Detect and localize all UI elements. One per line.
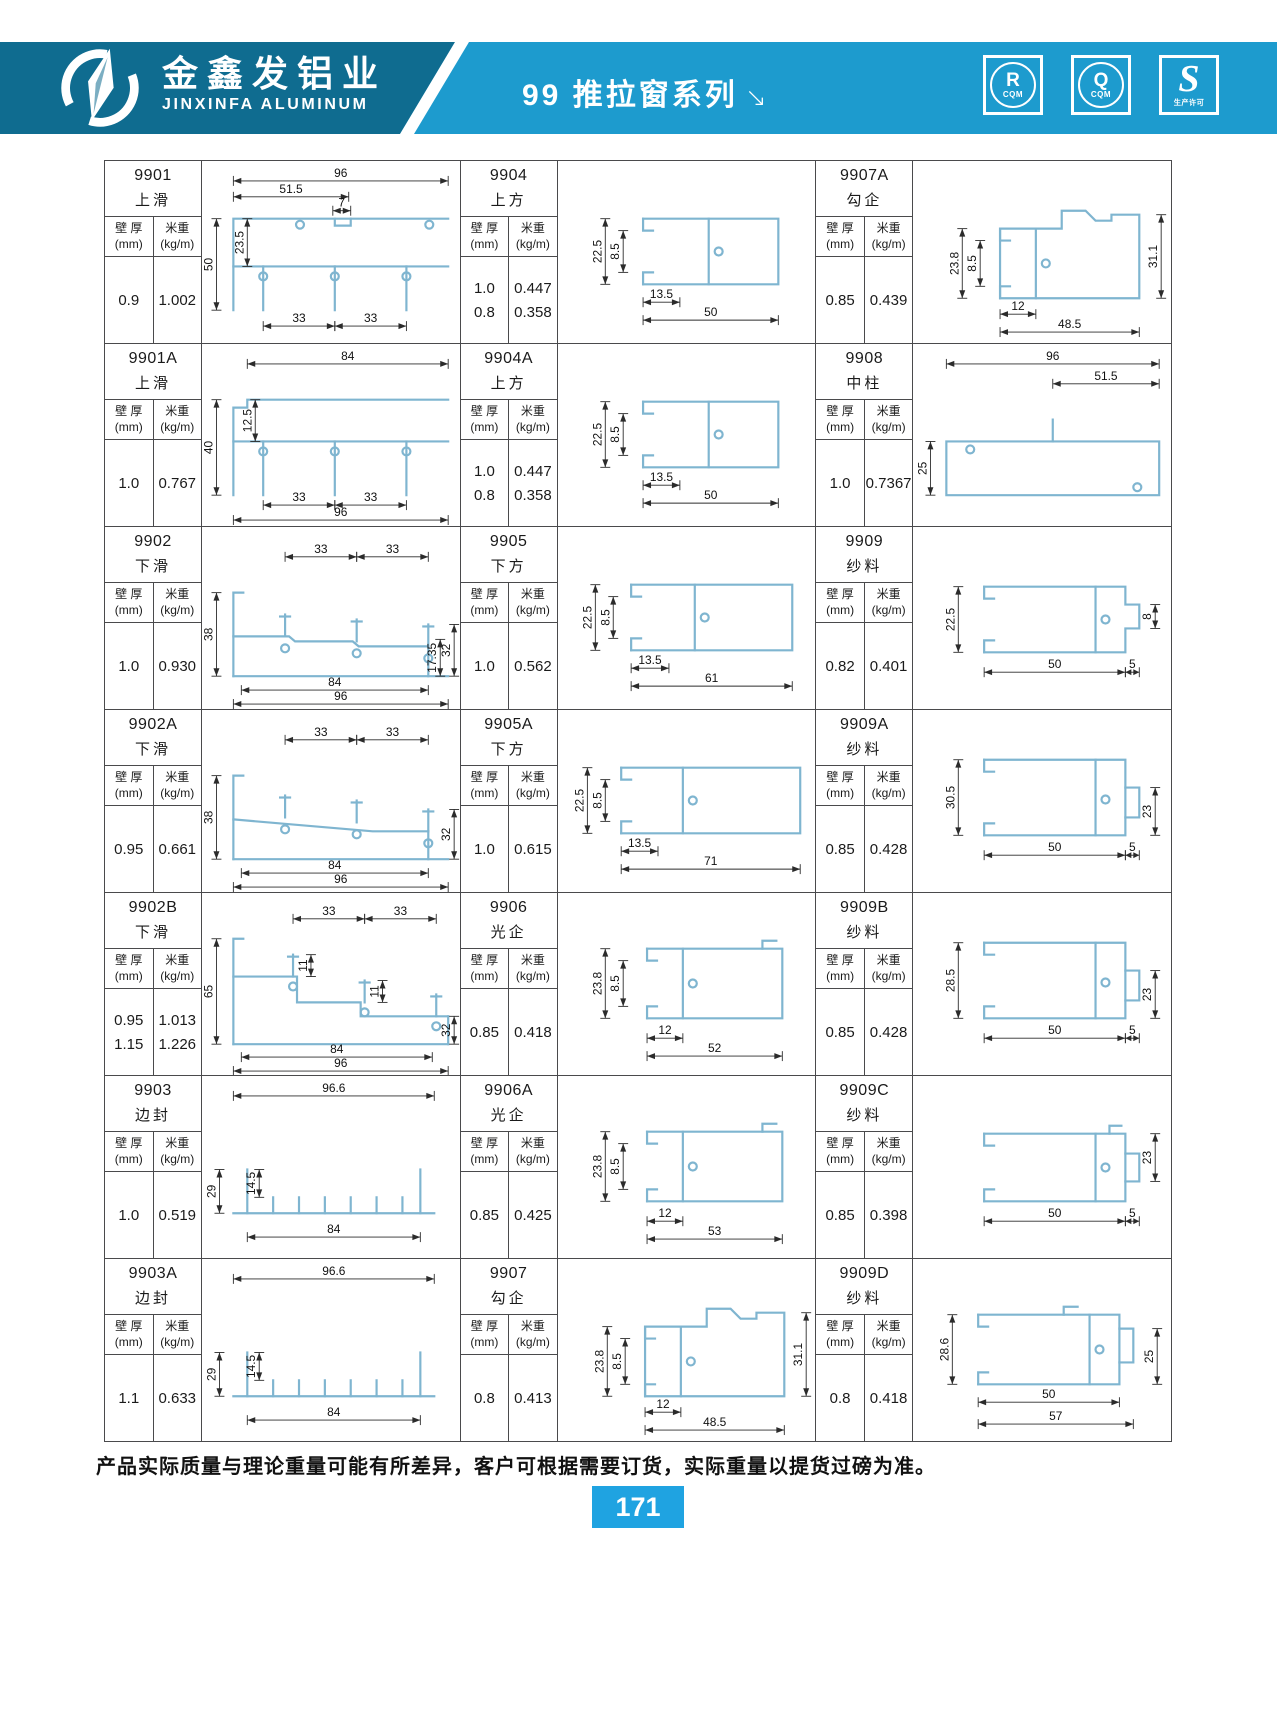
weight-header-label: 米重 bbox=[154, 221, 202, 237]
spec-header-row: 壁 厚 (mm) 米重 (kg/m) bbox=[105, 948, 201, 989]
spec-header-row: 壁 厚 (mm) 米重 (kg/m) bbox=[816, 948, 912, 989]
svg-text:96: 96 bbox=[334, 689, 348, 703]
weight-header: 米重 (kg/m) bbox=[865, 949, 913, 988]
thickness-header: 壁 厚 (mm) bbox=[461, 217, 510, 256]
weight-values: 0.425 bbox=[509, 1172, 557, 1258]
thickness-header: 壁 厚 (mm) bbox=[461, 400, 510, 439]
svg-text:40: 40 bbox=[202, 440, 215, 454]
svg-text:23.8: 23.8 bbox=[590, 972, 604, 996]
thickness-header-unit: (mm) bbox=[105, 786, 153, 802]
weight-header-unit: (kg/m) bbox=[509, 1335, 557, 1351]
weight-header: 米重 (kg/m) bbox=[509, 949, 557, 988]
company-name-cn: 金鑫发铝业 bbox=[162, 54, 387, 94]
profile-drawing: 96.614.52984 bbox=[202, 1076, 460, 1258]
thickness-values: 0.85 bbox=[816, 257, 865, 343]
weight-values: 0.661 bbox=[154, 806, 202, 892]
weight-value: 0.767 bbox=[158, 475, 196, 492]
svg-text:8.5: 8.5 bbox=[608, 243, 622, 260]
weight-value: 0.930 bbox=[158, 658, 196, 675]
thickness-header-unit: (mm) bbox=[461, 786, 509, 802]
thickness-header-unit: (mm) bbox=[461, 1152, 509, 1168]
weight-values: 0.418 bbox=[865, 1355, 913, 1441]
spec-values-row: 0.85 0.398 bbox=[816, 1172, 912, 1258]
thickness-header-label: 壁 厚 bbox=[816, 770, 864, 786]
weight-values: 0.401 bbox=[865, 623, 913, 709]
svg-text:8.5: 8.5 bbox=[966, 255, 980, 272]
thickness-value: 0.8 bbox=[474, 304, 495, 321]
weight-value: 0.562 bbox=[514, 658, 552, 675]
profile-cross-section-drawing: 3333111165328496 bbox=[202, 893, 460, 1075]
spec-header-row: 壁 厚 (mm) 米重 (kg/m) bbox=[105, 399, 201, 440]
weight-values: 0.418 bbox=[509, 989, 557, 1075]
svg-text:28.5: 28.5 bbox=[944, 969, 958, 993]
weight-values: 0.439 bbox=[865, 257, 913, 343]
thickness-values: 0.95 bbox=[105, 806, 154, 892]
weight-header-label: 米重 bbox=[865, 221, 913, 237]
spec-values-row: 1.0 0.615 bbox=[461, 806, 557, 892]
svg-text:5: 5 bbox=[1129, 657, 1136, 671]
profile-drawing: 28.6255057 bbox=[913, 1259, 1171, 1441]
thickness-values: 1.0 bbox=[816, 440, 865, 526]
svg-text:33: 33 bbox=[292, 311, 306, 325]
thickness-header-label: 壁 厚 bbox=[105, 1319, 153, 1335]
svg-text:8.5: 8.5 bbox=[610, 1353, 624, 1370]
profile-model: 9903A bbox=[105, 1259, 201, 1283]
svg-text:12: 12 bbox=[658, 1023, 672, 1037]
profile-cell: 9904A 上方 壁 厚 (mm) 米重 (kg/m) 1.00.8 0.447… bbox=[461, 344, 817, 527]
svg-text:30.5: 30.5 bbox=[944, 786, 958, 810]
thickness-values: 0.85 bbox=[816, 806, 865, 892]
spec-values-row: 0.85 0.428 bbox=[816, 989, 912, 1075]
weight-header-unit: (kg/m) bbox=[154, 1335, 202, 1351]
profile-cross-section-drawing: 23505 bbox=[913, 1076, 1171, 1258]
thickness-header: 壁 厚 (mm) bbox=[816, 217, 865, 256]
weight-header-unit: (kg/m) bbox=[509, 786, 557, 802]
profile-model: 9909 bbox=[816, 527, 912, 551]
weight-header-label: 米重 bbox=[509, 404, 557, 420]
spec-header-row: 壁 厚 (mm) 米重 (kg/m) bbox=[816, 1314, 912, 1355]
weight-value: 0.418 bbox=[514, 1024, 552, 1041]
weight-header: 米重 (kg/m) bbox=[509, 217, 557, 256]
profile-cross-section-drawing: 333338328496 bbox=[202, 710, 460, 892]
thickness-header: 壁 厚 (mm) bbox=[816, 1132, 865, 1171]
weight-header-unit: (kg/m) bbox=[154, 603, 202, 619]
thickness-header-label: 壁 厚 bbox=[461, 1136, 509, 1152]
profile-cell: 9909C 纱料 壁 厚 (mm) 米重 (kg/m) 0.85 0.398 2… bbox=[816, 1076, 1172, 1259]
thickness-values: 0.85 bbox=[816, 1172, 865, 1258]
weight-values: 0.615 bbox=[509, 806, 557, 892]
svg-text:22.5: 22.5 bbox=[580, 606, 594, 630]
spec-values-row: 1.00.8 0.4470.358 bbox=[461, 440, 557, 526]
profile-model: 9905A bbox=[461, 710, 557, 734]
svg-text:51.5: 51.5 bbox=[1095, 369, 1119, 383]
weight-value: 0.439 bbox=[870, 292, 908, 309]
thickness-header-label: 壁 厚 bbox=[461, 770, 509, 786]
thickness-values: 0.8 bbox=[816, 1355, 865, 1441]
thickness-header-unit: (mm) bbox=[816, 420, 864, 436]
thickness-value: 0.9 bbox=[118, 292, 139, 309]
spec-values-row: 0.85 0.425 bbox=[461, 1172, 557, 1258]
spec-values-row: 1.0 0.7367 bbox=[816, 440, 912, 526]
profile-spec-box: 9902B 下滑 壁 厚 (mm) 米重 (kg/m) 0.951.15 1.0… bbox=[105, 893, 202, 1075]
profile-spec-box: 9901A 上滑 壁 厚 (mm) 米重 (kg/m) 1.0 0.767 bbox=[105, 344, 202, 526]
weight-header: 米重 (kg/m) bbox=[865, 766, 913, 805]
svg-text:11: 11 bbox=[296, 959, 310, 972]
page-number: 171 bbox=[615, 1492, 660, 1523]
svg-text:32: 32 bbox=[439, 827, 453, 841]
profile-cross-section-drawing: 22.58.513.550 bbox=[558, 161, 816, 343]
svg-text:33: 33 bbox=[386, 725, 400, 739]
weight-header-label: 米重 bbox=[509, 953, 557, 969]
svg-text:50: 50 bbox=[1048, 1206, 1062, 1220]
thickness-header: 壁 厚 (mm) bbox=[816, 949, 865, 988]
weight-header-unit: (kg/m) bbox=[509, 969, 557, 985]
spec-header-row: 壁 厚 (mm) 米重 (kg/m) bbox=[461, 399, 557, 440]
svg-text:96: 96 bbox=[334, 872, 348, 886]
profile-name: 上方 bbox=[461, 368, 557, 399]
weight-value: 0.428 bbox=[870, 1024, 908, 1041]
weight-value: 0.661 bbox=[158, 841, 196, 858]
series-arrow-icon: ↘ bbox=[745, 82, 767, 113]
weight-header: 米重 (kg/m) bbox=[509, 1132, 557, 1171]
thickness-header: 壁 厚 (mm) bbox=[461, 1315, 510, 1354]
thickness-header: 壁 厚 (mm) bbox=[816, 1315, 865, 1354]
spec-header-row: 壁 厚 (mm) 米重 (kg/m) bbox=[105, 1314, 201, 1355]
profile-cross-section-drawing: 28.6255057 bbox=[913, 1259, 1171, 1441]
profile-drawing: 23.88.51253 bbox=[558, 1076, 816, 1258]
svg-text:8.5: 8.5 bbox=[608, 975, 622, 992]
weight-header: 米重 (kg/m) bbox=[509, 766, 557, 805]
svg-text:23.8: 23.8 bbox=[948, 251, 962, 275]
profile-drawing: 23505 bbox=[913, 1076, 1171, 1258]
svg-text:61: 61 bbox=[705, 671, 719, 685]
svg-text:8.5: 8.5 bbox=[598, 609, 612, 626]
profile-drawing: 22.58.513.561 bbox=[558, 527, 816, 709]
spec-values-row: 0.82 0.401 bbox=[816, 623, 912, 709]
profile-name: 下方 bbox=[461, 734, 557, 765]
svg-text:12.5: 12.5 bbox=[240, 409, 254, 433]
profile-cross-section-drawing: 28.523505 bbox=[913, 893, 1171, 1075]
profile-cell: 9902 下滑 壁 厚 (mm) 米重 (kg/m) 1.0 0.930 333… bbox=[105, 527, 461, 710]
thickness-header-unit: (mm) bbox=[461, 603, 509, 619]
profile-spec-box: 9904 上方 壁 厚 (mm) 米重 (kg/m) 1.00.8 0.4470… bbox=[461, 161, 558, 343]
weight-values: 0.7367 bbox=[865, 440, 913, 526]
weight-value: 0.615 bbox=[514, 841, 552, 858]
profile-cross-section-drawing: 9651.525 bbox=[913, 344, 1171, 526]
profile-cell: 9909A 纱料 壁 厚 (mm) 米重 (kg/m) 0.85 0.428 3… bbox=[816, 710, 1172, 893]
spec-header-row: 壁 厚 (mm) 米重 (kg/m) bbox=[105, 1131, 201, 1172]
thickness-header-unit: (mm) bbox=[816, 1335, 864, 1351]
thickness-header-label: 壁 厚 bbox=[105, 953, 153, 969]
svg-text:51.5: 51.5 bbox=[279, 182, 303, 196]
thickness-value: 0.8 bbox=[830, 1390, 851, 1407]
profile-drawing: 23.88.531.11248.5 bbox=[558, 1259, 816, 1441]
thickness-header: 壁 厚 (mm) bbox=[461, 583, 510, 622]
thickness-values: 1.0 bbox=[105, 623, 154, 709]
thickness-header-unit: (mm) bbox=[816, 237, 864, 253]
profiles-table: 9901 上滑 壁 厚 (mm) 米重 (kg/m) 0.9 1.002 965… bbox=[104, 160, 1172, 1442]
badge-sub: 生产许可 bbox=[1174, 98, 1205, 108]
spec-header-row: 壁 厚 (mm) 米重 (kg/m) bbox=[816, 399, 912, 440]
svg-text:38: 38 bbox=[202, 627, 215, 641]
svg-text:96.6: 96.6 bbox=[322, 1264, 346, 1278]
weight-header-unit: (kg/m) bbox=[865, 969, 913, 985]
weight-header: 米重 (kg/m) bbox=[154, 583, 202, 622]
thickness-header: 壁 厚 (mm) bbox=[105, 400, 154, 439]
weight-header-unit: (kg/m) bbox=[154, 420, 202, 436]
badge-sub: CQM bbox=[1091, 91, 1111, 99]
thickness-header-unit: (mm) bbox=[461, 1335, 509, 1351]
spec-header-row: 壁 厚 (mm) 米重 (kg/m) bbox=[816, 765, 912, 806]
weight-header-label: 米重 bbox=[865, 587, 913, 603]
spec-header-row: 壁 厚 (mm) 米重 (kg/m) bbox=[461, 765, 557, 806]
certification-badges: R CQM Q CQM S 生产许可 bbox=[983, 55, 1219, 115]
thickness-header: 壁 厚 (mm) bbox=[816, 766, 865, 805]
profile-spec-box: 9909B 纱料 壁 厚 (mm) 米重 (kg/m) 0.85 0.428 bbox=[816, 893, 913, 1075]
thickness-values: 1.0 bbox=[461, 623, 510, 709]
spec-header-row: 壁 厚 (mm) 米重 (kg/m) bbox=[461, 1314, 557, 1355]
thickness-value: 1.0 bbox=[118, 658, 139, 675]
thickness-value: 1.0 bbox=[118, 475, 139, 492]
profile-spec-box: 9905A 下方 壁 厚 (mm) 米重 (kg/m) 1.0 0.615 bbox=[461, 710, 558, 892]
profile-cell: 9909D 纱料 壁 厚 (mm) 米重 (kg/m) 0.8 0.418 28… bbox=[816, 1259, 1172, 1442]
svg-text:17.35: 17.35 bbox=[425, 642, 439, 672]
svg-text:13.5: 13.5 bbox=[628, 836, 652, 850]
thickness-header-label: 壁 厚 bbox=[461, 1319, 509, 1335]
svg-text:8.5: 8.5 bbox=[590, 792, 604, 809]
weight-value: 0.633 bbox=[158, 1390, 196, 1407]
profile-cell: 9907 勾企 壁 厚 (mm) 米重 (kg/m) 0.8 0.413 23.… bbox=[461, 1259, 817, 1442]
profile-name: 纱料 bbox=[816, 917, 912, 948]
thickness-header-label: 壁 厚 bbox=[461, 953, 509, 969]
profile-model: 9901A bbox=[105, 344, 201, 368]
profile-name: 光企 bbox=[461, 917, 557, 948]
spec-header-row: 壁 厚 (mm) 米重 (kg/m) bbox=[105, 582, 201, 623]
svg-text:84: 84 bbox=[328, 675, 342, 689]
thickness-header-label: 壁 厚 bbox=[461, 404, 509, 420]
svg-text:33: 33 bbox=[292, 490, 306, 504]
profile-name: 下方 bbox=[461, 551, 557, 582]
svg-text:12: 12 bbox=[1012, 299, 1026, 313]
thickness-header: 壁 厚 (mm) bbox=[105, 217, 154, 256]
svg-text:84: 84 bbox=[330, 1042, 344, 1056]
thickness-header-label: 壁 厚 bbox=[816, 221, 864, 237]
profile-spec-box: 9909 纱料 壁 厚 (mm) 米重 (kg/m) 0.82 0.401 bbox=[816, 527, 913, 709]
svg-text:96: 96 bbox=[334, 1056, 348, 1070]
weight-header-label: 米重 bbox=[154, 587, 202, 603]
profile-drawing: 96.614.52984 bbox=[202, 1259, 460, 1441]
weight-header: 米重 (kg/m) bbox=[865, 583, 913, 622]
profile-drawing: 23.88.51252 bbox=[558, 893, 816, 1075]
profile-cross-section-drawing: 9651.5723.5503333 bbox=[202, 161, 460, 343]
thickness-value: 1.0 bbox=[474, 463, 495, 480]
thickness-value: 1.0 bbox=[474, 280, 495, 297]
thickness-values: 0.85 bbox=[461, 1172, 510, 1258]
svg-text:12: 12 bbox=[656, 1397, 670, 1411]
svg-text:50: 50 bbox=[1042, 1387, 1056, 1401]
weight-header-label: 米重 bbox=[154, 1319, 202, 1335]
thickness-header-unit: (mm) bbox=[105, 1335, 153, 1351]
svg-text:33: 33 bbox=[394, 904, 408, 918]
thickness-values: 0.85 bbox=[816, 989, 865, 1075]
weight-header-unit: (kg/m) bbox=[154, 237, 202, 253]
thickness-values: 1.0 bbox=[105, 440, 154, 526]
weight-header: 米重 (kg/m) bbox=[865, 1315, 913, 1354]
thickness-value: 0.85 bbox=[470, 1024, 499, 1041]
svg-text:13.5: 13.5 bbox=[650, 470, 674, 484]
thickness-value: 1.1 bbox=[118, 1390, 139, 1407]
weight-header-label: 米重 bbox=[509, 221, 557, 237]
svg-text:23: 23 bbox=[1141, 987, 1155, 1001]
svg-text:25: 25 bbox=[1143, 1349, 1157, 1363]
spec-values-row: 1.0 0.562 bbox=[461, 623, 557, 709]
thickness-header-unit: (mm) bbox=[105, 603, 153, 619]
profile-cross-section-drawing: 22.58.513.571 bbox=[558, 710, 816, 892]
profile-drawing: 8412.540333396 bbox=[202, 344, 460, 526]
profile-cross-section-drawing: 23.88.51252 bbox=[558, 893, 816, 1075]
profile-model: 9902B bbox=[105, 893, 201, 917]
weight-header-label: 米重 bbox=[154, 770, 202, 786]
profile-name: 纱料 bbox=[816, 1100, 912, 1131]
profile-spec-box: 9902 下滑 壁 厚 (mm) 米重 (kg/m) 1.0 0.930 bbox=[105, 527, 202, 709]
weight-header-label: 米重 bbox=[154, 404, 202, 420]
weight-header-unit: (kg/m) bbox=[509, 420, 557, 436]
svg-text:22.5: 22.5 bbox=[944, 608, 958, 632]
profile-spec-box: 9903A 边封 壁 厚 (mm) 米重 (kg/m) 1.1 0.633 bbox=[105, 1259, 202, 1441]
profile-drawing: 9651.5723.5503333 bbox=[202, 161, 460, 343]
svg-text:8.5: 8.5 bbox=[608, 1158, 622, 1175]
thickness-header-label: 壁 厚 bbox=[105, 1136, 153, 1152]
svg-text:48.5: 48.5 bbox=[1058, 317, 1082, 331]
svg-text:38: 38 bbox=[202, 810, 215, 824]
svg-text:84: 84 bbox=[327, 1222, 341, 1236]
thickness-value: 0.85 bbox=[825, 1207, 854, 1224]
thickness-header-label: 壁 厚 bbox=[105, 404, 153, 420]
cqm-q-badge-circle: Q CQM bbox=[1078, 62, 1124, 108]
spec-values-row: 0.8 0.413 bbox=[461, 1355, 557, 1441]
thickness-header-unit: (mm) bbox=[461, 420, 509, 436]
weight-header: 米重 (kg/m) bbox=[154, 1315, 202, 1354]
weight-header-unit: (kg/m) bbox=[865, 603, 913, 619]
profile-name: 上滑 bbox=[105, 368, 201, 399]
spec-values-row: 0.95 0.661 bbox=[105, 806, 201, 892]
thickness-header-unit: (mm) bbox=[816, 969, 864, 985]
profile-spec-box: 9909D 纱料 壁 厚 (mm) 米重 (kg/m) 0.8 0.418 bbox=[816, 1259, 913, 1441]
weight-value: 0.428 bbox=[870, 841, 908, 858]
thickness-header-unit: (mm) bbox=[816, 786, 864, 802]
profile-name: 下滑 bbox=[105, 917, 201, 948]
svg-text:22.5: 22.5 bbox=[590, 423, 604, 447]
profile-model: 9904 bbox=[461, 161, 557, 185]
spec-header-row: 壁 厚 (mm) 米重 (kg/m) bbox=[816, 582, 912, 623]
profile-cross-section-drawing: 30.523505 bbox=[913, 710, 1171, 892]
weight-value: 0.447 bbox=[514, 463, 552, 480]
thickness-header: 壁 厚 (mm) bbox=[461, 766, 510, 805]
svg-text:53: 53 bbox=[708, 1224, 722, 1238]
thickness-value: 1.15 bbox=[114, 1036, 143, 1053]
profile-drawing: 22.58.513.571 bbox=[558, 710, 816, 892]
profile-model: 9906 bbox=[461, 893, 557, 917]
weight-value: 1.226 bbox=[158, 1036, 196, 1053]
thickness-header-unit: (mm) bbox=[816, 1152, 864, 1168]
thickness-header: 壁 厚 (mm) bbox=[105, 1315, 154, 1354]
svg-text:31.1: 31.1 bbox=[1147, 245, 1161, 269]
thickness-values: 1.1 bbox=[105, 1355, 154, 1441]
svg-text:23.8: 23.8 bbox=[592, 1349, 606, 1373]
thickness-header-unit: (mm) bbox=[105, 420, 153, 436]
thickness-value: 0.85 bbox=[825, 1024, 854, 1041]
svg-text:33: 33 bbox=[386, 542, 400, 556]
qs-license-badge: S 生产许可 bbox=[1159, 55, 1219, 115]
thickness-header-label: 壁 厚 bbox=[816, 1136, 864, 1152]
weight-header: 米重 (kg/m) bbox=[154, 1132, 202, 1171]
profile-model: 9902 bbox=[105, 527, 201, 551]
profile-name: 上滑 bbox=[105, 185, 201, 216]
weight-header: 米重 (kg/m) bbox=[154, 400, 202, 439]
weight-values: 0.930 bbox=[154, 623, 202, 709]
thickness-value: 1.0 bbox=[474, 658, 495, 675]
profile-model: 9904A bbox=[461, 344, 557, 368]
profile-cell: 9902A 下滑 壁 厚 (mm) 米重 (kg/m) 0.95 0.661 3… bbox=[105, 710, 461, 893]
svg-text:14.5: 14.5 bbox=[244, 1354, 258, 1378]
profile-cross-section-drawing: 22.58505 bbox=[913, 527, 1171, 709]
thickness-header: 壁 厚 (mm) bbox=[105, 583, 154, 622]
profile-model: 9909D bbox=[816, 1259, 912, 1283]
profile-spec-box: 9909C 纱料 壁 厚 (mm) 米重 (kg/m) 0.85 0.398 bbox=[816, 1076, 913, 1258]
weight-header-unit: (kg/m) bbox=[509, 603, 557, 619]
weight-values: 0.428 bbox=[865, 806, 913, 892]
weight-value: 1.013 bbox=[158, 1012, 196, 1029]
profile-drawing: 30.523505 bbox=[913, 710, 1171, 892]
profile-model: 9903 bbox=[105, 1076, 201, 1100]
profile-model: 9907 bbox=[461, 1259, 557, 1283]
profile-cell: 9902B 下滑 壁 厚 (mm) 米重 (kg/m) 0.951.15 1.0… bbox=[105, 893, 461, 1076]
profile-cross-section-drawing: 22.58.513.550 bbox=[558, 344, 816, 526]
profile-drawing: 22.58.513.550 bbox=[558, 344, 816, 526]
weight-header-label: 米重 bbox=[865, 953, 913, 969]
thickness-value: 0.82 bbox=[825, 658, 854, 675]
profile-cross-section-drawing: 23.88.531.11248.5 bbox=[913, 161, 1171, 343]
spec-values-row: 0.85 0.418 bbox=[461, 989, 557, 1075]
spec-values-row: 1.1 0.633 bbox=[105, 1355, 201, 1441]
svg-text:23.8: 23.8 bbox=[590, 1155, 604, 1179]
profile-drawing: 23.88.531.11248.5 bbox=[913, 161, 1171, 343]
weight-header: 米重 (kg/m) bbox=[865, 1132, 913, 1171]
weight-header-label: 米重 bbox=[509, 770, 557, 786]
header-band: 金鑫发铝业 JINXINFA ALUMINUM 99 推拉窗系列 ↘ R CQM… bbox=[0, 42, 1277, 134]
profile-name: 纱料 bbox=[816, 1283, 912, 1314]
weight-header: 米重 (kg/m) bbox=[865, 217, 913, 256]
thickness-header: 壁 厚 (mm) bbox=[461, 949, 510, 988]
weight-header-unit: (kg/m) bbox=[865, 1152, 913, 1168]
profile-cross-section-drawing: 23.88.51253 bbox=[558, 1076, 816, 1258]
thickness-header: 壁 厚 (mm) bbox=[816, 583, 865, 622]
spec-header-row: 壁 厚 (mm) 米重 (kg/m) bbox=[105, 216, 201, 257]
weight-value: 0.401 bbox=[870, 658, 908, 675]
weight-header-label: 米重 bbox=[865, 404, 913, 420]
spec-header-row: 壁 厚 (mm) 米重 (kg/m) bbox=[816, 216, 912, 257]
profile-drawing: 3333111165328496 bbox=[202, 893, 460, 1075]
svg-text:13.5: 13.5 bbox=[650, 287, 674, 301]
svg-text:23: 23 bbox=[1141, 1151, 1155, 1165]
svg-text:33: 33 bbox=[364, 490, 378, 504]
profile-spec-box: 9908 中柱 壁 厚 (mm) 米重 (kg/m) 1.0 0.7367 bbox=[816, 344, 913, 526]
weight-values: 0.562 bbox=[509, 623, 557, 709]
profile-cell: 9901 上滑 壁 厚 (mm) 米重 (kg/m) 0.9 1.002 965… bbox=[105, 161, 461, 344]
svg-text:33: 33 bbox=[322, 904, 336, 918]
profile-name: 中柱 bbox=[816, 368, 912, 399]
weight-values: 0.4470.358 bbox=[509, 440, 557, 526]
